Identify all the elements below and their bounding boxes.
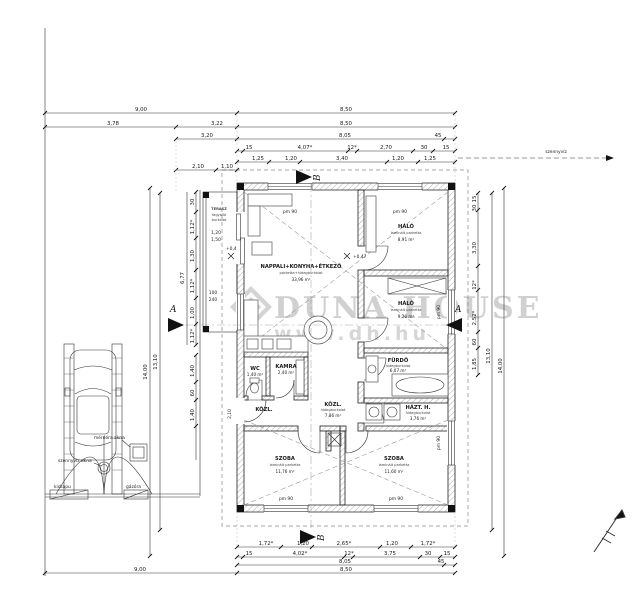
room-label-nappali: NAPPALI+KONYHA+ÉTKEZŐ [261, 262, 342, 270]
svg-text:1,12*: 1,12* [190, 219, 196, 234]
svg-text:15: 15 [246, 551, 253, 557]
svg-text:7,86 m²: 7,86 m² [325, 413, 342, 418]
svg-text:1,20: 1,20 [211, 230, 221, 236]
room-label-kozl2: KÖZL. [255, 406, 272, 413]
svg-text:6,07 m²: 6,07 m² [390, 368, 407, 373]
level-interior: +0,47 [344, 253, 367, 260]
svg-text:laminált parketta: laminált parketta [270, 463, 301, 467]
room-label-kozl: KÖZL. [324, 401, 341, 408]
svg-text:hidegburkolat: hidegburkolat [321, 408, 346, 412]
gas-meter-label: gázóra [126, 483, 141, 490]
terrace-sliding-door [236, 212, 245, 264]
svg-text:6,77: 6,77 [180, 272, 186, 284]
svg-text:8,50: 8,50 [340, 107, 353, 113]
svg-text:1,20: 1,20 [392, 156, 405, 162]
svg-text:9,00: 9,00 [134, 567, 147, 573]
svg-text:1,25: 1,25 [424, 156, 436, 162]
svg-text:15: 15 [246, 145, 253, 151]
svg-text:8,50: 8,50 [340, 567, 353, 573]
svg-text:12*: 12* [347, 145, 357, 151]
svg-text:30: 30 [421, 145, 428, 151]
svg-text:pm 90: pm 90 [279, 496, 293, 502]
svg-text:9,00: 9,00 [135, 107, 148, 113]
svg-text:burkolat: burkolat [212, 218, 227, 222]
svg-text:pm 90: pm 90 [283, 209, 297, 215]
svg-text:pm 90: pm 90 [436, 305, 442, 319]
svg-text:1,25: 1,25 [252, 156, 264, 162]
svg-text:15: 15 [443, 145, 450, 151]
floorplan-drawing: DUNA HOUSE ® www.dh.hu kiskapu gázóra [0, 0, 640, 616]
section-a-label-right: A [454, 305, 462, 315]
svg-text:1,20: 1,20 [285, 156, 298, 162]
svg-text:30: 30 [472, 204, 478, 211]
svg-text:2,52*: 2,52* [472, 310, 478, 325]
svg-text:60: 60 [190, 389, 196, 396]
svg-text:8,05: 8,05 [339, 133, 351, 139]
svg-text:14,00: 14,00 [498, 358, 504, 374]
svg-text:laminált parketta: laminált parketta [379, 463, 410, 467]
section-b-arrow-top [296, 170, 312, 184]
svg-text:2,10: 2,10 [192, 164, 205, 170]
sewer-label: szennyvíz [545, 148, 567, 155]
svg-text:1,20: 1,20 [386, 541, 399, 547]
north-arrow-icon [594, 510, 625, 552]
gate-label: kiskapu [54, 484, 71, 490]
svg-text:pm 90: pm 90 [436, 436, 442, 450]
svg-text:60: 60 [472, 338, 478, 345]
dimensions-top: 9,00 8,50 3,78 3,22 8,50 3,20 8,05 45 15… [43, 107, 457, 172]
meter-shaft [130, 444, 147, 461]
svg-text:240: 240 [209, 297, 218, 303]
svg-text:1,00: 1,00 [190, 306, 196, 319]
svg-text:pm 90: pm 90 [393, 209, 407, 215]
svg-text:1,72*: 1,72* [421, 541, 436, 547]
svg-text:fagyálló: fagyálló [212, 213, 226, 217]
floorplan-page: DUNA HOUSE ® www.dh.hu kiskapu gázóra [0, 0, 640, 616]
svg-text:3,76 m²: 3,76 m² [410, 416, 427, 421]
svg-text:4,02*: 4,02* [293, 551, 308, 557]
room-label-halo2: HÁLÓ [398, 300, 414, 307]
room-label-terasz: TERASZ [211, 207, 227, 211]
svg-text:9,20 m²: 9,20 m² [398, 314, 415, 319]
svg-text:100: 100 [209, 290, 218, 296]
dimensions-right: 15 30 3,30 12* 2,52* 60 1,85 13,10 14,00 [472, 186, 506, 558]
svg-text:8,05: 8,05 [339, 559, 351, 565]
svg-text:3,30: 3,30 [472, 241, 478, 254]
svg-text:laminált parketta: laminált parketta [391, 231, 422, 235]
svg-text:33,96 m²: 33,96 m² [291, 277, 310, 282]
svg-text:2,70: 2,70 [380, 145, 393, 151]
svg-text:2,65*: 2,65* [337, 541, 352, 547]
svg-text:11,60 m²: 11,60 m² [384, 469, 403, 474]
section-b-label-top: B [313, 174, 323, 182]
svg-text:1,30: 1,30 [190, 249, 196, 262]
svg-text:1,50: 1,50 [211, 237, 221, 243]
car-top-view [65, 350, 121, 460]
svg-text:12*: 12* [472, 280, 478, 290]
meter-shaft-label: mérőóra akna [94, 434, 125, 441]
dimensions-bottom: 1,72* 1,20 2,65* 1,20 1,72* 15 4,02* 12*… [43, 541, 457, 575]
svg-text:1,40 m²: 1,40 m² [247, 372, 264, 377]
section-a-label-left: A [169, 305, 177, 315]
svg-text:1,72*: 1,72* [259, 541, 274, 547]
svg-text:3,40: 3,40 [336, 156, 349, 162]
svg-text:15: 15 [444, 551, 451, 557]
svg-text:30: 30 [190, 198, 196, 205]
svg-text:12*: 12* [344, 551, 354, 557]
svg-text:45: 45 [438, 559, 445, 565]
svg-text:1,40: 1,40 [190, 408, 196, 421]
svg-text:1,12*: 1,12* [190, 328, 196, 343]
dimensions-left: 14,00 13,10 6,77 30 1,12* 1,30 1,12* 1,0… [143, 186, 198, 558]
section-b-label-bottom: B [317, 534, 327, 542]
svg-text:45: 45 [435, 133, 442, 139]
svg-text:4,07*: 4,07* [298, 145, 313, 151]
svg-text:1,20: 1,20 [297, 541, 310, 547]
svg-text:1,10: 1,10 [221, 164, 234, 170]
svg-text:pm 90: pm 90 [389, 496, 403, 502]
svg-text:1,12*: 1,12* [190, 278, 196, 293]
section-a-arrow-left [168, 318, 184, 332]
sewer-connection: szennyvíz [458, 148, 614, 161]
svg-text:13,10: 13,10 [153, 354, 159, 370]
svg-text:8,50: 8,50 [340, 121, 353, 127]
room-label-szoba-jobb: SZOBA [384, 456, 404, 462]
svg-text:2,10: 2,10 [227, 409, 233, 419]
svg-text:+0,47: +0,47 [353, 254, 367, 260]
svg-text:parketta+hidegburkolat: parketta+hidegburkolat [279, 271, 323, 275]
room-label-haztartasi: HÁZT. H. [406, 404, 431, 411]
section-markers: A A B B [168, 170, 462, 544]
svg-text:15: 15 [472, 196, 478, 203]
svg-text:3,78: 3,78 [107, 121, 120, 127]
svg-text:2,40 m²: 2,40 m² [278, 370, 295, 375]
svg-text:14,00: 14,00 [143, 364, 149, 380]
svg-text:hidegburkolat: hidegburkolat [406, 411, 431, 415]
svg-text:1,40: 1,40 [190, 364, 196, 377]
svg-text:3,75: 3,75 [384, 551, 396, 557]
room-label-szoba-bal: SZOBA [275, 456, 295, 462]
svg-text:30: 30 [425, 551, 432, 557]
svg-text:laminált parketta: laminált parketta [391, 308, 422, 312]
toilet [250, 378, 259, 393]
svg-text:3,20: 3,20 [201, 133, 214, 139]
room-label-halo1: HÁLÓ [398, 223, 414, 230]
svg-text:3,22: 3,22 [211, 121, 223, 127]
driveway: szennyvíz akna mérőóra akna [56, 344, 152, 494]
sewer-shaft-label: szennyvíz akna [58, 457, 92, 464]
bathtub [392, 374, 448, 396]
room-label-furdo: FÜRDŐ [388, 357, 409, 364]
svg-text:8,91 m²: 8,91 m² [398, 237, 415, 242]
svg-text:13,10: 13,10 [486, 348, 492, 364]
svg-text:11,76 m²: 11,76 m² [275, 469, 294, 474]
svg-text:1,85: 1,85 [472, 358, 478, 370]
